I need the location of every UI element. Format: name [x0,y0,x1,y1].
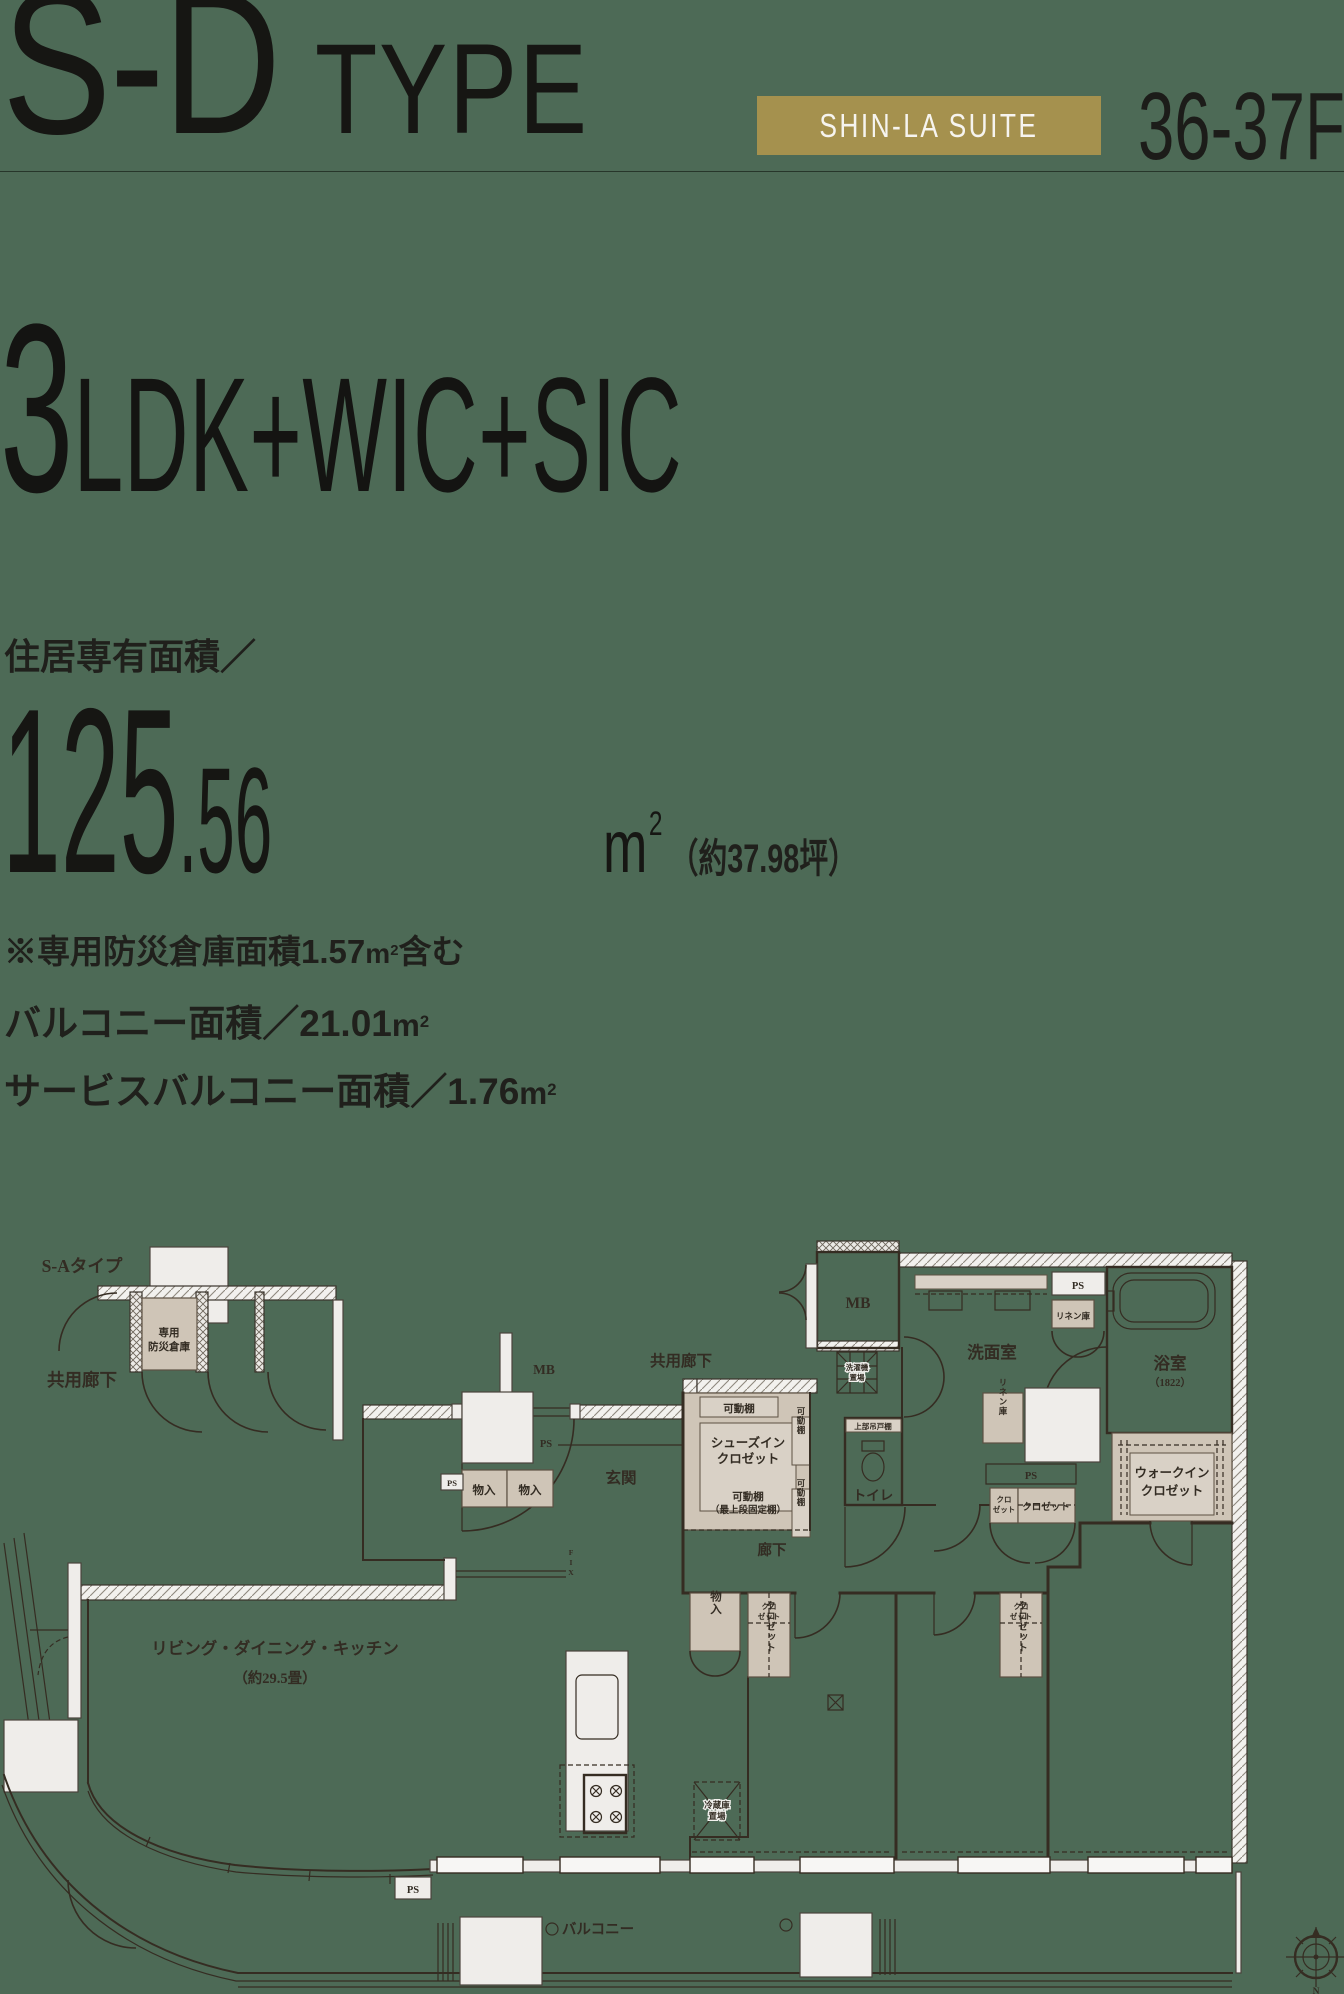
exterior-walls [68,1241,1247,1863]
bedroom-closets: 物入 クロ ゼット クロゼット クロ ゼット クロゼット [690,1590,1042,1677]
area-int: 125 [2,659,178,922]
laundry-label-2: 置場 [850,1372,865,1382]
fridge-label-1: 冷蔵庫 [704,1800,730,1810]
exclusive-area-value: 125.56 m2（約37.98坪） [2,673,955,908]
walk-in-closet: ウォークイン クロゼット [1112,1433,1232,1565]
ps-mid-label: PS [1025,1471,1037,1482]
sic-label-1: シューズイン [711,1435,785,1450]
bousai-label-1: 専用 [159,1326,180,1339]
shelf-right-1: 可動棚 [796,1407,806,1436]
floor-range: 36-37F [1138,79,1344,175]
area-unit: m [603,805,647,888]
inset-corridor-label: 共用廊下 [47,1370,117,1390]
linen-top-label: リネン庫 [1056,1311,1091,1321]
laundry-label-1: 洗濯機 [846,1362,869,1372]
toilet-label: トイレ [853,1488,894,1503]
room-count: 3 [0,274,73,542]
shelf-right-2: 可動棚 [796,1479,806,1508]
genkan-label: 玄関 [605,1468,636,1487]
storage-1-label: 物入 [473,1483,496,1497]
ldk-size-label: （約29.5畳） [233,1669,316,1687]
wic-label-1: ウォークイン [1134,1466,1209,1480]
sa-type-label: S-Aタイプ [42,1256,123,1276]
type-word: TYPE [315,18,589,161]
storage-2-label: 物入 [519,1483,542,1497]
linen-core: リネン庫 PS クロ ゼット クロゼット [983,1378,1100,1563]
washroom-label: 洗面室 [967,1342,1017,1362]
area-dec: .56 [178,736,272,904]
corridor-label: 共用廊下 [650,1351,712,1370]
composition: LDK+WIC+SIC [73,343,682,526]
ps-left-label: PS [540,1439,552,1450]
meter-box-left: MB PS [462,1333,555,1463]
inset-common-corridor: S-Aタイプ 共用廊下 専用 防災倉庫 [42,1247,343,1440]
storage-3-label: 物入 [709,1590,722,1616]
closet-m-b: クロゼット [1022,1501,1070,1513]
mb-right-label: MB [846,1295,871,1312]
closet-m-a2: ゼット [993,1504,1016,1514]
suite-badge: SHIN-LA SUITE [757,96,1101,155]
closet-m-a1: クロ [997,1494,1012,1504]
header-divider [0,171,1344,172]
fridge-label-2: 置場 [708,1811,726,1821]
shelf-note-label: （最上段固定棚） [710,1504,786,1516]
ps-top-label: PS [1072,1281,1084,1292]
floor-plan: S-Aタイプ 共用廊下 専用 防災倉庫 [0,975,1344,1994]
page-title: S-DTYPE [2,0,735,165]
area-tsubo: （約37.98坪） [669,837,856,881]
bath-size-label: （1822） [1149,1376,1191,1389]
shelf-mid-label: 可動棚 [732,1490,764,1503]
area-unit-sup: 2 [648,805,662,843]
linen-v-label: リネン庫 [998,1378,1008,1416]
storage-note: ※専用防災倉庫面積1.57m2含む [4,925,464,973]
wic-label-2: クロゼット [1141,1483,1204,1498]
closet3-b: クロゼット [1016,1601,1028,1654]
ps-bottom-label: PS [407,1885,419,1896]
bath-label: 浴室 [1154,1353,1187,1373]
ldk-label: リビング・ダイニング・キッチン [151,1638,399,1658]
toilet-laundry: 洗濯機 置場 上部吊戸棚 トイレ [837,1352,905,1567]
interior-walls: 廊下 [683,1523,1232,1860]
compass-icon: N [1286,1927,1344,1994]
bousai-label-2: 防災倉庫 [148,1340,190,1353]
mb-left-label: MB [533,1362,555,1377]
ps-small-label: PS [447,1478,457,1488]
shoes-in-closet: 可動棚 シューズイン クロゼット 可動棚 （最上段固定棚） 可動棚 可動棚 [683,1393,810,1593]
type-code: S-D [2,0,280,177]
suite-badge-label: SHIN-LA SUITE [819,107,1038,145]
closet2-b: クロゼット [764,1601,776,1654]
ps-linen-top: PS リネン庫 [1052,1272,1105,1357]
page: S-DTYPE SHIN-LA SUITE 36-37F 3LDK+WIC+SI… [0,0,1344,1994]
hall-label: 廊下 [758,1541,787,1559]
balcony-label: バルコニー [562,1921,634,1938]
sic-label-2: クロゼット [717,1451,780,1466]
upper-cabinet-label: 上部吊戸棚 [854,1421,892,1431]
shelf-top-label: 可動棚 [723,1402,755,1415]
compass-north-label: N [1313,1987,1320,1994]
fix-window-label: FIX [567,1548,576,1578]
layout-composition: 3LDK+WIC+SIC [0,288,1241,528]
